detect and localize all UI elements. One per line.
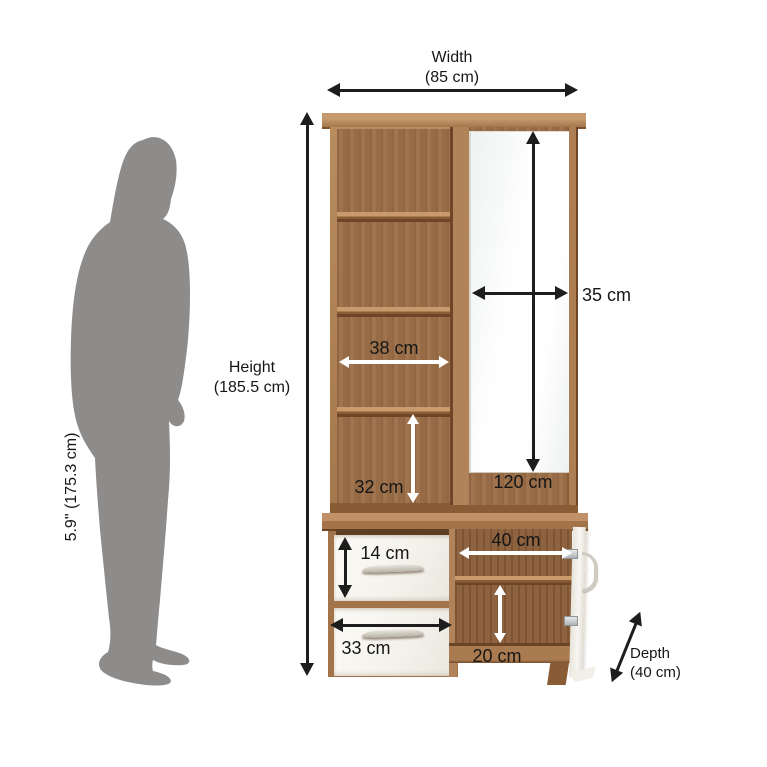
mirror-height-arrow (526, 131, 540, 472)
width-label: Width (85 cm) (397, 48, 507, 88)
height-arrow (300, 112, 314, 676)
compartment-middle-shelf (455, 576, 572, 585)
shelf-board-2 (337, 307, 450, 317)
mirror-width-label: 35 cm (582, 285, 631, 306)
compartment-gap-label: 20 cm (457, 646, 537, 667)
height-title: Height (206, 358, 298, 378)
mirror (469, 131, 569, 473)
shelf-gap-label: 32 cm (339, 477, 419, 498)
drawer-width-label: 33 cm (326, 638, 406, 659)
shelf-board-3 (337, 407, 450, 417)
width-title: Width (397, 48, 507, 68)
compartment-gap-arrow (494, 585, 506, 643)
drawer-height-label: 14 cm (345, 543, 425, 564)
shelf-width-label: 38 cm (354, 338, 434, 359)
depth-label: Depth (40 cm) (630, 644, 700, 682)
depth-title: Depth (630, 644, 700, 663)
product-dimension-diagram: 5.9" (175.3 cm) (0, 0, 767, 767)
person-height-label: 5.9" (175.3 cm) (63, 433, 81, 542)
mirror-height-label: 120 cm (473, 472, 573, 493)
cabinet-right-leg (547, 663, 569, 685)
height-value: (185.5 cm) (206, 378, 298, 398)
center-divider (450, 127, 469, 513)
door-hinge-bottom (564, 616, 578, 626)
compartment-width-label: 40 cm (476, 530, 556, 551)
width-value: (85 cm) (397, 68, 507, 88)
shelf-board-1 (337, 212, 450, 222)
depth-value: (40 cm) (630, 663, 700, 682)
drawer-width-arrow (330, 618, 452, 632)
mirror-width-arrow (472, 286, 568, 300)
height-label: Height (185.5 cm) (206, 358, 298, 398)
table-back-rail (330, 505, 578, 513)
